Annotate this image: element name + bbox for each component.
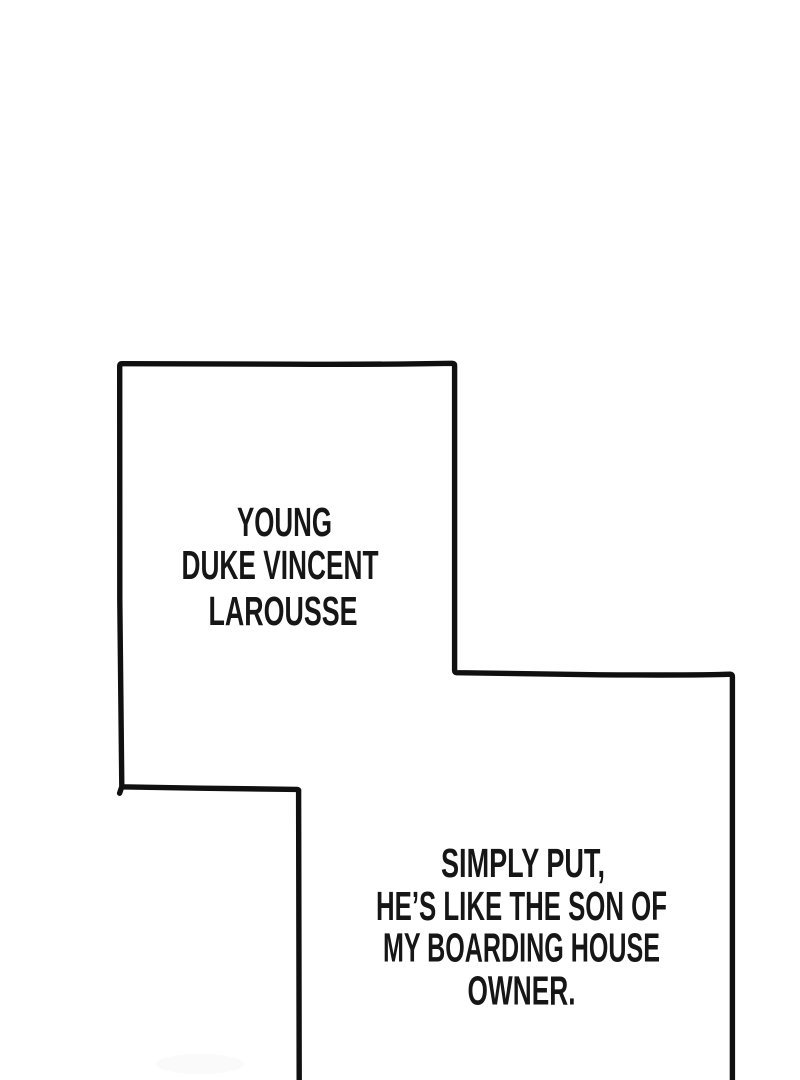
svg-text:HE’S LIKE THE SON OF: HE’S LIKE THE SON OF [376,883,667,929]
svg-text:YOUNG: YOUNG [237,499,332,545]
svg-text:OWNER.: OWNER. [468,968,576,1014]
svg-text:MY BOARDING HOUSE: MY BOARDING HOUSE [383,925,660,971]
svg-text:DUKE VINCENT: DUKE VINCENT [182,542,379,588]
svg-text:SIMPLY PUT,: SIMPLY PUT, [441,840,605,886]
svg-text:LAROUSSE: LAROUSSE [209,588,358,634]
